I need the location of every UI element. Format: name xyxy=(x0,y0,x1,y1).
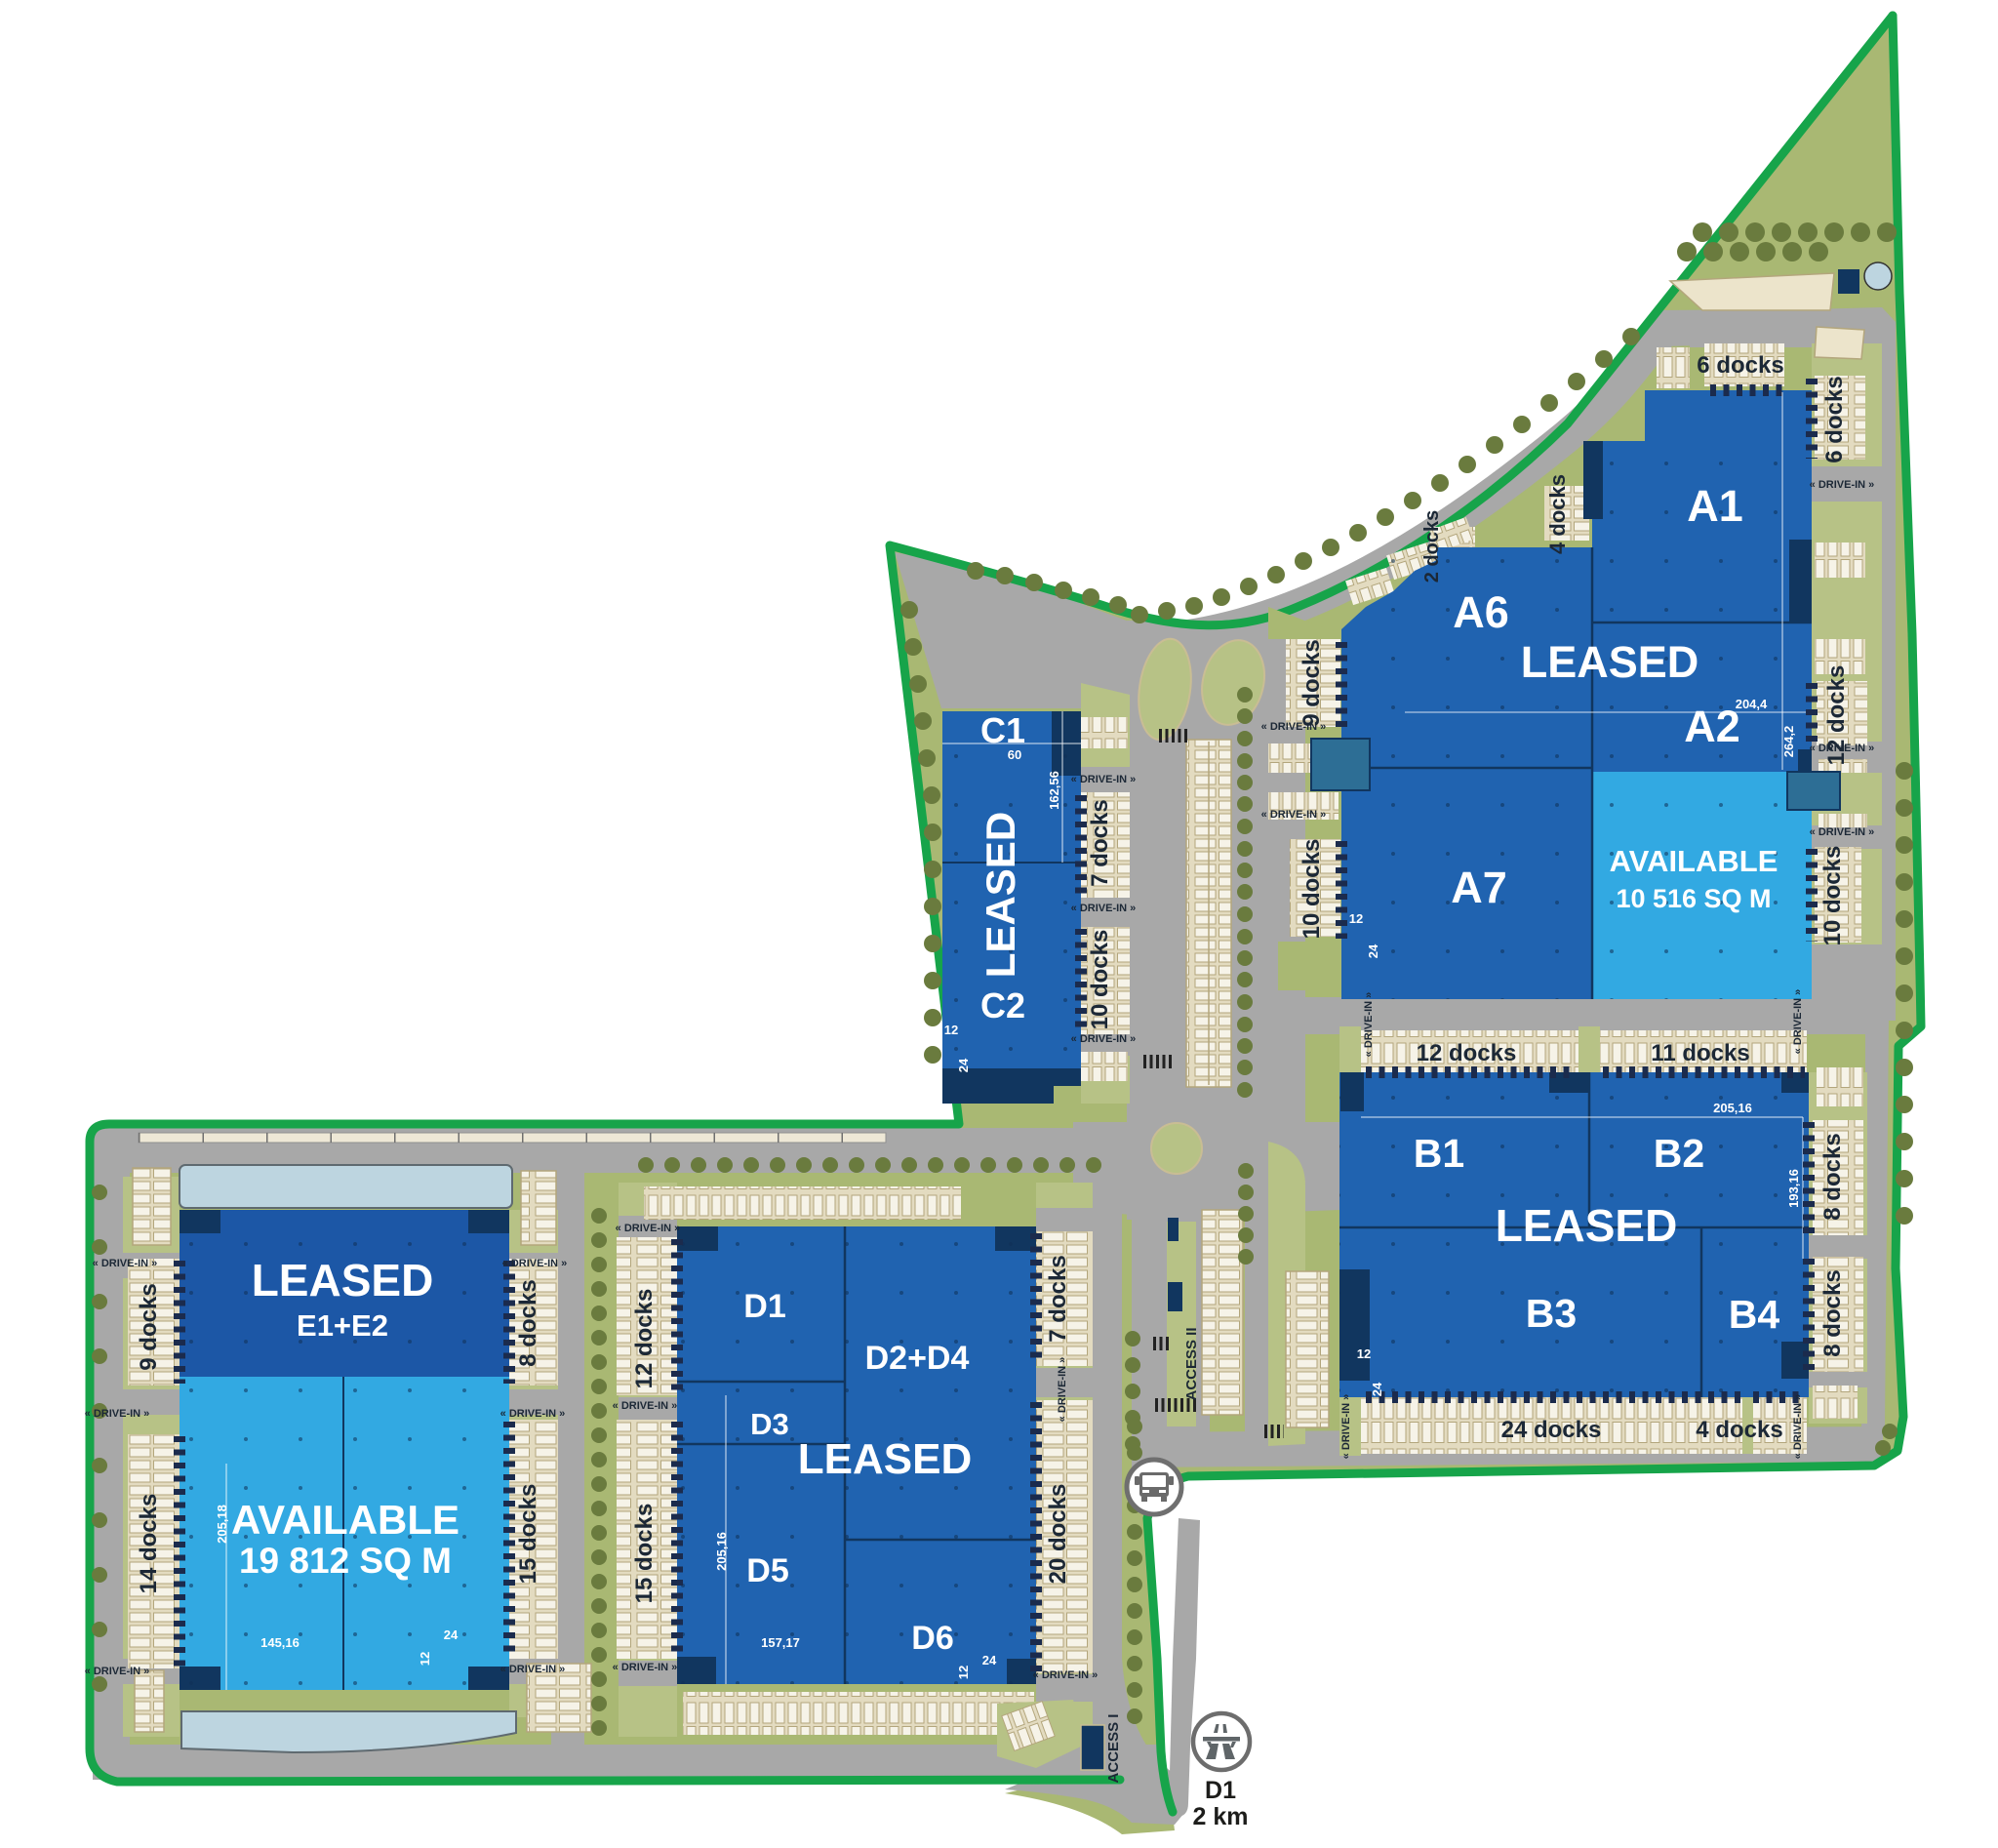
svg-text:20 docks: 20 docks xyxy=(1045,1484,1071,1585)
svg-text:24: 24 xyxy=(982,1653,997,1667)
svg-text:12: 12 xyxy=(1349,911,1363,926)
svg-text:8 docks: 8 docks xyxy=(1819,1133,1846,1220)
svg-text:264,2: 264,2 xyxy=(1781,726,1796,758)
svg-text:« DRIVE-IN »: « DRIVE-IN » xyxy=(1071,1033,1137,1045)
svg-text:205,18: 205,18 xyxy=(215,1505,229,1544)
svg-text:10 docks: 10 docks xyxy=(1299,839,1325,940)
svg-text:12: 12 xyxy=(1357,1346,1371,1361)
svg-text:« DRIVE-IN »: « DRIVE-IN » xyxy=(1363,992,1375,1058)
svg-text:A7: A7 xyxy=(1451,863,1507,912)
svg-text:A6: A6 xyxy=(1453,587,1509,637)
svg-text:« DRIVE-IN »: « DRIVE-IN » xyxy=(613,1400,678,1412)
svg-text:LEASED: LEASED xyxy=(252,1255,434,1306)
svg-text:145,16: 145,16 xyxy=(260,1635,300,1650)
svg-text:« DRIVE-IN »: « DRIVE-IN » xyxy=(613,1662,678,1673)
svg-text:LEASED: LEASED xyxy=(978,812,1023,978)
svg-text:12: 12 xyxy=(944,1023,958,1037)
svg-text:D1: D1 xyxy=(743,1288,785,1325)
svg-text:205,16: 205,16 xyxy=(1713,1101,1752,1115)
svg-text:« DRIVE-IN »: « DRIVE-IN » xyxy=(1810,826,1875,838)
svg-text:D3: D3 xyxy=(750,1407,789,1441)
svg-text:10 docks: 10 docks xyxy=(1819,846,1846,946)
svg-text:LEASED: LEASED xyxy=(1496,1200,1678,1251)
svg-text:« DRIVE-IN »: « DRIVE-IN » xyxy=(1810,743,1875,754)
svg-text:« DRIVE-IN »: « DRIVE-IN » xyxy=(93,1258,158,1269)
svg-text:11 docks: 11 docks xyxy=(1651,1040,1749,1066)
svg-text:24: 24 xyxy=(1366,944,1380,958)
svg-text:« DRIVE-IN »: « DRIVE-IN » xyxy=(1033,1669,1099,1681)
svg-text:2 km: 2 km xyxy=(1193,1803,1249,1830)
svg-text:12: 12 xyxy=(418,1652,432,1666)
svg-text:8 docks: 8 docks xyxy=(1819,1269,1846,1356)
svg-text:« DRIVE-IN »: « DRIVE-IN » xyxy=(1261,721,1327,733)
svg-text:162,56: 162,56 xyxy=(1047,771,1061,810)
svg-text:« DRIVE-IN »: « DRIVE-IN » xyxy=(1792,989,1804,1055)
svg-text:« DRIVE-IN »: « DRIVE-IN » xyxy=(1071,774,1137,785)
svg-text:12 docks: 12 docks xyxy=(631,1289,658,1389)
svg-text:B3: B3 xyxy=(1526,1291,1577,1336)
svg-text:B1: B1 xyxy=(1414,1131,1464,1176)
svg-text:A2: A2 xyxy=(1684,702,1740,751)
svg-text:157,17: 157,17 xyxy=(761,1635,800,1650)
svg-text:D5: D5 xyxy=(746,1552,788,1589)
svg-text:7 docks: 7 docks xyxy=(1087,799,1113,886)
svg-text:24: 24 xyxy=(956,1058,971,1072)
svg-text:9 docks: 9 docks xyxy=(136,1283,162,1370)
svg-text:« DRIVE-IN »: « DRIVE-IN » xyxy=(1340,1394,1352,1460)
svg-text:15 docks: 15 docks xyxy=(515,1484,541,1585)
svg-text:D6: D6 xyxy=(911,1620,953,1657)
svg-text:« DRIVE-IN »: « DRIVE-IN » xyxy=(1792,1394,1804,1460)
svg-text:LEASED: LEASED xyxy=(1521,637,1699,687)
svg-text:9 docks: 9 docks xyxy=(1299,639,1325,726)
svg-text:« DRIVE-IN »: « DRIVE-IN » xyxy=(85,1408,150,1420)
svg-text:24: 24 xyxy=(1370,1382,1384,1396)
svg-text:C1: C1 xyxy=(980,710,1025,750)
svg-text:B4: B4 xyxy=(1729,1292,1780,1337)
svg-text:B2: B2 xyxy=(1654,1131,1704,1176)
svg-text:A1: A1 xyxy=(1687,481,1743,531)
svg-text:« DRIVE-IN »: « DRIVE-IN » xyxy=(502,1258,568,1269)
svg-text:7 docks: 7 docks xyxy=(1045,1255,1071,1342)
svg-text:8 docks: 8 docks xyxy=(515,1279,541,1366)
svg-text:24: 24 xyxy=(444,1627,459,1642)
svg-text:« DRIVE-IN »: « DRIVE-IN » xyxy=(616,1223,681,1234)
svg-text:193,16: 193,16 xyxy=(1786,1169,1801,1208)
svg-text:C2: C2 xyxy=(980,985,1025,1025)
svg-text:205,16: 205,16 xyxy=(714,1532,729,1571)
svg-text:« DRIVE-IN »: « DRIVE-IN » xyxy=(500,1408,566,1420)
svg-text:10 516 SQ M: 10 516 SQ M xyxy=(1616,884,1771,913)
svg-text:D1: D1 xyxy=(1205,1777,1236,1804)
svg-text:12: 12 xyxy=(956,1666,971,1679)
svg-text:« DRIVE-IN »: « DRIVE-IN » xyxy=(1810,479,1875,491)
svg-text:10 docks: 10 docks xyxy=(1087,930,1113,1030)
svg-text:AVAILABLE: AVAILABLE xyxy=(1610,844,1778,878)
svg-text:4 docks: 4 docks xyxy=(1545,474,1570,554)
svg-text:« DRIVE-IN »: « DRIVE-IN » xyxy=(1261,809,1327,821)
svg-text:« DRIVE-IN »: « DRIVE-IN » xyxy=(1071,903,1137,914)
svg-text:ACCESS I: ACCESS I xyxy=(1105,1714,1122,1784)
svg-text:« DRIVE-IN »: « DRIVE-IN » xyxy=(85,1666,150,1677)
svg-text:« DRIVE-IN »: « DRIVE-IN » xyxy=(500,1664,566,1675)
svg-text:D2+D4: D2+D4 xyxy=(865,1340,970,1377)
svg-text:« DRIVE-IN »: « DRIVE-IN » xyxy=(1057,1357,1068,1423)
svg-text:4 docks: 4 docks xyxy=(1696,1417,1782,1443)
svg-text:6 docks: 6 docks xyxy=(1821,376,1848,462)
svg-text:60: 60 xyxy=(1008,747,1021,762)
svg-text:AVAILABLE: AVAILABLE xyxy=(231,1497,460,1543)
svg-text:12 docks: 12 docks xyxy=(1417,1040,1517,1066)
svg-text:2 docks: 2 docks xyxy=(1421,510,1443,583)
svg-text:E1+E2: E1+E2 xyxy=(297,1308,388,1343)
svg-text:LEASED: LEASED xyxy=(798,1435,972,1483)
svg-text:14 docks: 14 docks xyxy=(136,1494,162,1594)
svg-text:19 812 SQ M: 19 812 SQ M xyxy=(239,1541,452,1581)
svg-text:6 docks: 6 docks xyxy=(1697,352,1783,379)
svg-text:ACCESS II: ACCESS II xyxy=(1183,1327,1200,1400)
svg-text:15 docks: 15 docks xyxy=(631,1504,658,1604)
svg-text:24 docks: 24 docks xyxy=(1501,1417,1602,1443)
svg-text:204,4: 204,4 xyxy=(1736,697,1768,711)
